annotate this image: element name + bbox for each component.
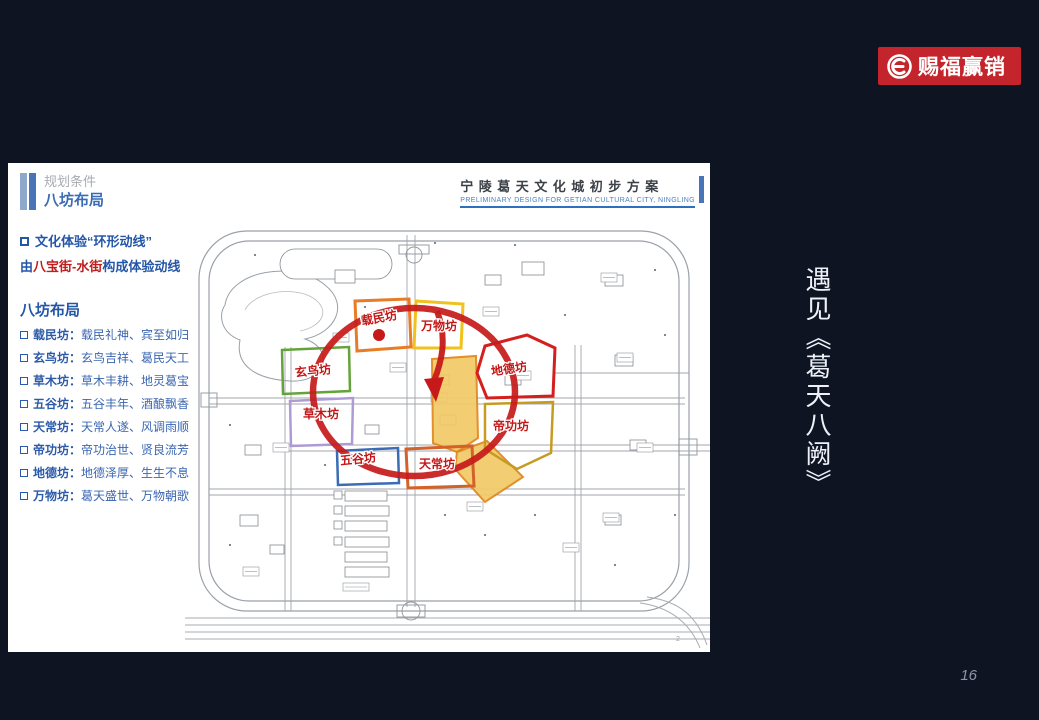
- intro-block: 文化体验“环形动线” 由八宝街-水街构成体验动线: [20, 233, 190, 275]
- bullet-square-icon: [20, 492, 28, 500]
- bullet-square-icon: [20, 423, 28, 431]
- list-item: 地德坊： 地德泽厚、生生不息: [20, 466, 192, 480]
- zone-label-digong: 帝功坊: [493, 418, 529, 433]
- fang-desc: 帝功治世、贤良流芳: [81, 443, 189, 457]
- intro-line2: 由八宝街-水街构成体验动线: [20, 258, 190, 275]
- zone-label-caomu: 草木坊: [303, 406, 339, 421]
- brand-logo-text: 赐福赢销: [918, 51, 1006, 81]
- fang-desc: 五谷丰年、酒酿飘香: [81, 397, 189, 411]
- fang-name: 帝功坊：: [33, 443, 81, 457]
- fang-list: 八坊布局 载民坊： 载民礼神、宾至如归 玄鸟坊： 玄鸟吉祥、葛民天工 草木坊： …: [20, 299, 192, 512]
- slide-side-caption: 遇见《葛天八阙》: [799, 266, 836, 498]
- zone-label-tianchang: 天常坊: [419, 456, 455, 471]
- bullet-square-icon: [20, 377, 28, 385]
- list-item: 载民坊： 载民礼神、宾至如归: [20, 328, 192, 342]
- map-sheet-number: 2: [676, 636, 680, 643]
- fang-list-title: 八坊布局: [20, 299, 192, 320]
- lake-inner-contour: [245, 291, 323, 331]
- zone-label-xuanniao: 玄鸟坊: [294, 361, 331, 380]
- section-eyebrow: 规划条件: [44, 173, 104, 191]
- document-title-block: 宁陵葛天文化城初步方案 PRELIMINARY DESIGN FOR GETIA…: [460, 176, 704, 208]
- slide-page: 规划条件 八坊布局 宁陵葛天文化城初步方案 PRELIMINARY DESIGN…: [8, 163, 710, 652]
- slide-section-title: 八坊布局: [44, 191, 104, 210]
- fang-name: 草木坊：: [33, 374, 81, 388]
- list-item: 天常坊： 天常人遂、风调雨顺: [20, 420, 192, 434]
- bullet-square-icon: [20, 354, 28, 362]
- fang-name: 万物坊：: [33, 489, 81, 503]
- list-item: 玄鸟坊： 玄鸟吉祥、葛民天工: [20, 351, 192, 365]
- fang-name: 地德坊：: [33, 466, 81, 480]
- fang-desc: 草木丰耕、地灵葛宝: [81, 374, 189, 388]
- list-item: 万物坊： 葛天盛世、万物朝歌: [20, 489, 192, 503]
- document-title-en: PRELIMINARY DESIGN FOR GETIAN CULTURAL C…: [460, 197, 695, 208]
- route-node: [373, 329, 385, 341]
- bullet-square-icon: [20, 469, 28, 477]
- header-accent-bar-dark: [29, 173, 36, 210]
- fang-desc: 葛天盛世、万物朝歌: [81, 489, 189, 503]
- deck-page-number: 16: [960, 667, 977, 684]
- fang-desc: 地德泽厚、生生不息: [81, 466, 189, 480]
- zone-label-wanwu: 万物坊: [420, 318, 457, 333]
- site-plan-map: 载民坊 万物坊 玄鸟坊 草木坊 地德坊 帝功坊 五谷坊 天常坊: [185, 215, 710, 650]
- south-highway: [185, 597, 710, 648]
- intro-line2-highlight: 八宝街-水街: [33, 259, 102, 274]
- list-item: 帝功坊： 帝功治世、贤良流芳: [20, 443, 192, 457]
- title-accent-bar: [699, 176, 704, 203]
- slide-header: 规划条件 八坊布局: [20, 173, 104, 210]
- list-item: 五谷坊： 五谷丰年、酒酿飘香: [20, 397, 192, 411]
- brand-logo: 赐福赢销: [878, 47, 1021, 85]
- fang-name: 玄鸟坊：: [33, 351, 81, 365]
- list-item: 草木坊： 草木丰耕、地灵葛宝: [20, 374, 192, 388]
- intro-line1: 文化体验“环形动线”: [35, 233, 152, 250]
- bullet-square-icon: [20, 237, 29, 246]
- fang-name: 天常坊：: [33, 420, 81, 434]
- bullet-square-icon: [20, 331, 28, 339]
- fang-desc: 载民礼神、宾至如归: [81, 328, 189, 342]
- logo-f-circle-icon: [886, 53, 913, 80]
- bullet-square-icon: [20, 446, 28, 454]
- document-title-zh: 宁陵葛天文化城初步方案: [460, 176, 695, 195]
- intro-line2-prefix: 由: [20, 259, 33, 274]
- fang-name: 载民坊：: [33, 328, 81, 342]
- header-accent-bar-light: [20, 173, 27, 210]
- fang-desc: 玄鸟吉祥、葛民天工: [81, 351, 189, 365]
- fang-desc: 天常人遂、风调雨顺: [81, 420, 189, 434]
- intro-line2-suffix: 构成体验动线: [102, 259, 180, 274]
- zone-label-zaimin: 载民坊: [360, 307, 398, 328]
- bullet-square-icon: [20, 400, 28, 408]
- fang-name: 五谷坊：: [33, 397, 81, 411]
